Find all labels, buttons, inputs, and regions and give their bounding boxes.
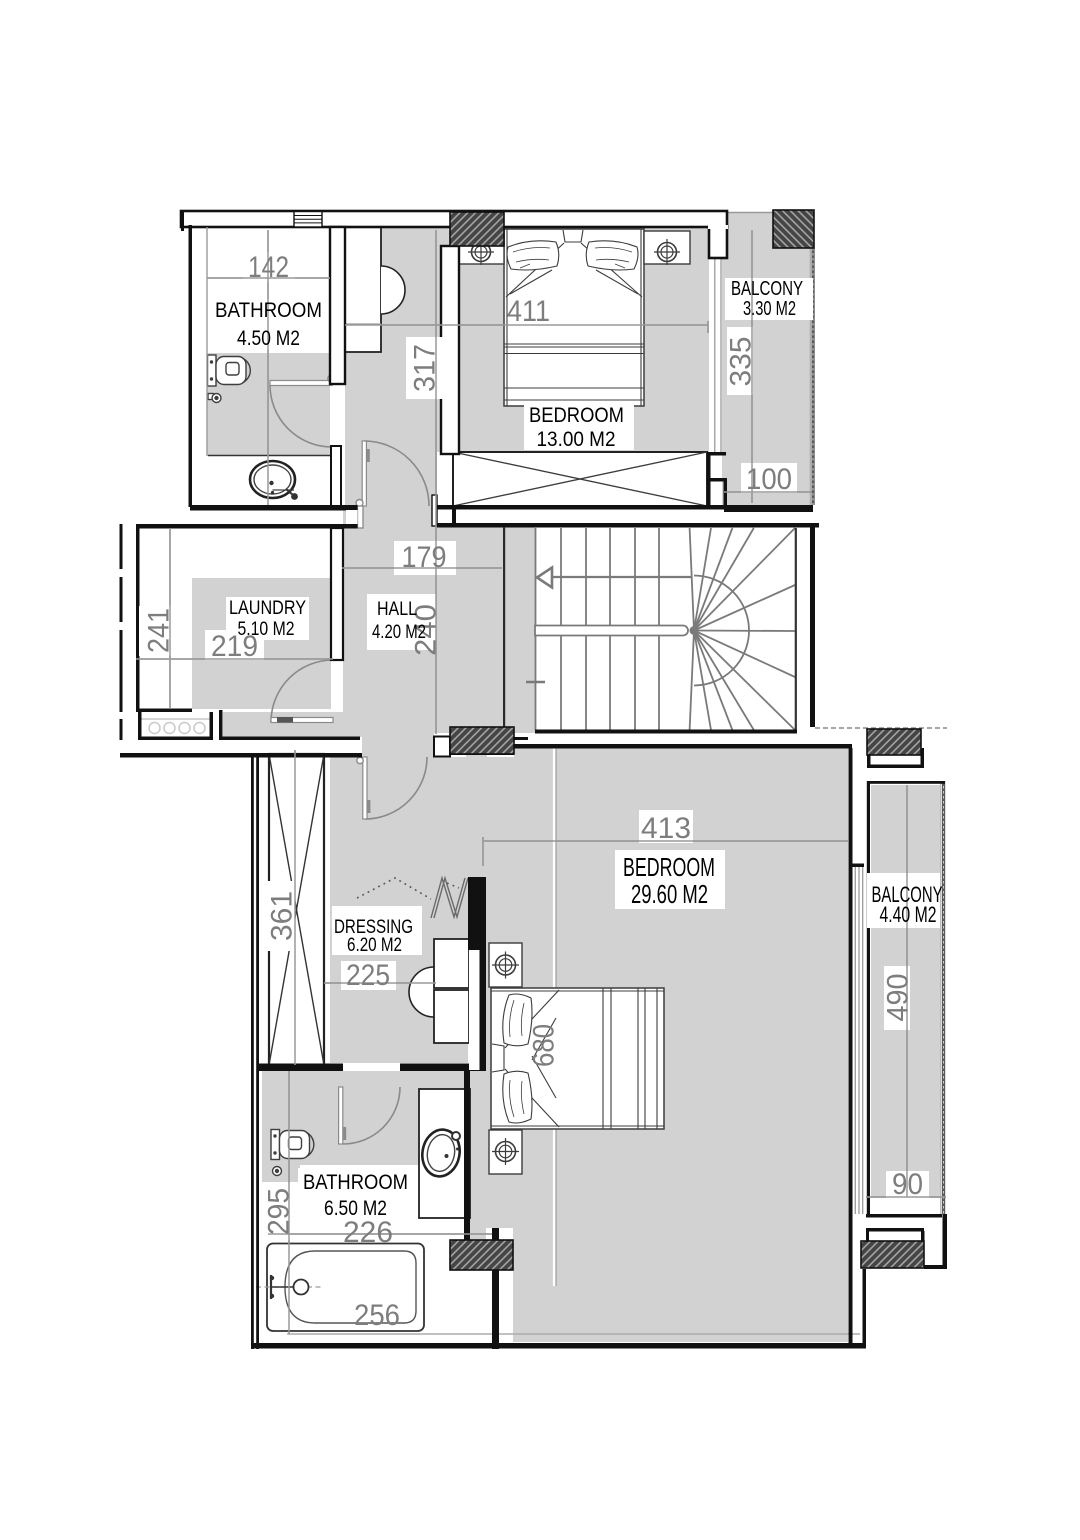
svg-text:BATHROOM: BATHROOM bbox=[215, 299, 322, 322]
svg-text:BEDROOM: BEDROOM bbox=[529, 404, 624, 427]
svg-text:BALCONY: BALCONY bbox=[731, 278, 803, 300]
svg-text:4.40 M2: 4.40 M2 bbox=[880, 902, 937, 927]
svg-text:490: 490 bbox=[881, 974, 914, 1022]
svg-text:295: 295 bbox=[262, 1188, 295, 1235]
svg-text:179: 179 bbox=[402, 541, 447, 574]
svg-text:142: 142 bbox=[248, 251, 289, 284]
svg-text:361: 361 bbox=[265, 891, 298, 941]
svg-text:680: 680 bbox=[527, 1024, 560, 1067]
svg-text:411: 411 bbox=[507, 295, 550, 328]
svg-text:100: 100 bbox=[746, 463, 792, 496]
svg-text:HALL: HALL bbox=[377, 599, 417, 620]
svg-text:241: 241 bbox=[142, 608, 175, 653]
svg-text:3.30 M2: 3.30 M2 bbox=[743, 298, 796, 320]
svg-text:256: 256 bbox=[354, 1299, 400, 1332]
svg-text:226: 226 bbox=[343, 1216, 393, 1249]
svg-text:4.20 M2: 4.20 M2 bbox=[372, 622, 426, 643]
svg-text:413: 413 bbox=[641, 812, 691, 845]
svg-text:225: 225 bbox=[346, 959, 390, 992]
svg-text:29.60 M2: 29.60 M2 bbox=[631, 879, 708, 909]
svg-text:335: 335 bbox=[724, 337, 757, 387]
svg-text:317: 317 bbox=[408, 344, 441, 392]
svg-text:13.00 M2: 13.00 M2 bbox=[537, 428, 616, 451]
svg-text:90: 90 bbox=[892, 1168, 923, 1201]
svg-text:219: 219 bbox=[211, 630, 258, 663]
svg-text:BATHROOM: BATHROOM bbox=[303, 1171, 408, 1194]
svg-text:6.20 M2: 6.20 M2 bbox=[347, 935, 402, 956]
svg-text:4.50 M2: 4.50 M2 bbox=[237, 327, 300, 350]
svg-text:BEDROOM: BEDROOM bbox=[623, 852, 715, 882]
svg-text:LAUNDRY: LAUNDRY bbox=[229, 598, 306, 619]
